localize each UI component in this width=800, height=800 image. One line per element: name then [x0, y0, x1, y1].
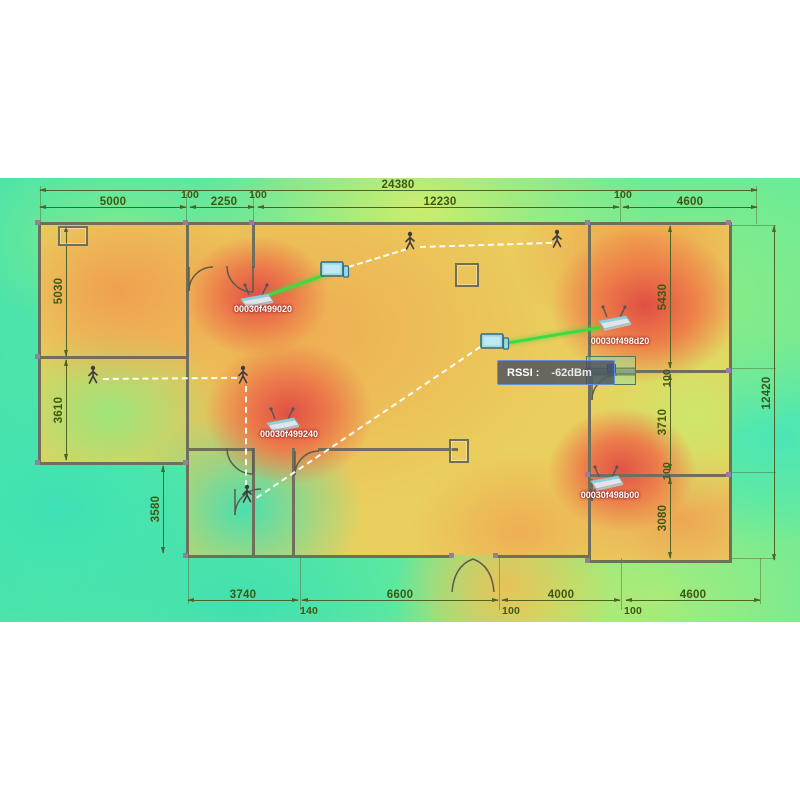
wall-junction [183, 220, 188, 225]
dim-label: 4600 [677, 196, 703, 208]
ap-mac-label: 00030f499240 [260, 429, 318, 439]
wall-junction [183, 460, 188, 465]
wall-junction [35, 460, 40, 465]
wall-topleft-partition [252, 222, 255, 268]
dim-label: 3740 [230, 589, 256, 601]
rssi-value: -62dBm [551, 367, 591, 379]
simulation-canvas[interactable]: 24380 5000 100 2250 100 12230 100 4600 5… [0, 0, 800, 800]
laptop-icon[interactable] [480, 331, 510, 351]
door-arc [188, 266, 214, 294]
dim-label-gap: 100 [661, 462, 673, 480]
wall-junction [726, 220, 731, 225]
dimension-line [163, 466, 164, 553]
dim-label: 6600 [387, 589, 413, 601]
dim-label-gap: 100 [661, 369, 673, 387]
extension-line [732, 225, 776, 226]
shaft-box [449, 439, 469, 463]
wall-left-bottom [38, 462, 188, 465]
person-icon[interactable] [86, 365, 100, 385]
dim-label-gap: 100 [614, 189, 632, 201]
dim-label-gap: 140 [300, 605, 318, 617]
wall-junction [726, 472, 731, 477]
walk-path [245, 386, 247, 486]
dim-label-gap: 100 [181, 189, 199, 201]
dim-label: 3610 [53, 397, 65, 423]
dim-label: 12230 [424, 196, 457, 208]
wall-innerroom-top [318, 448, 458, 451]
dim-label: 2250 [211, 196, 237, 208]
dim-label: 3080 [657, 505, 669, 531]
wall-junction [726, 368, 731, 373]
dimension-line [66, 360, 67, 460]
wall-left-outer [38, 222, 41, 465]
wall-junction [183, 553, 188, 558]
dim-label: 3580 [150, 496, 162, 522]
wall-junction [35, 220, 40, 225]
extension-line [732, 472, 776, 473]
ap-mac-label: 00030f498d20 [591, 336, 650, 346]
window-box [58, 226, 88, 246]
access-point-icon[interactable] [594, 305, 634, 331]
dim-label-gap: 100 [249, 189, 267, 201]
wall-junction [585, 558, 590, 563]
dim-label-overall-right: 12420 [761, 377, 773, 410]
extension-line [621, 558, 622, 610]
person-icon[interactable] [403, 231, 417, 251]
dim-label: 5030 [53, 278, 65, 304]
dimension-line [670, 374, 671, 470]
rssi-label: RSSI : [507, 367, 539, 379]
person-icon[interactable] [240, 484, 254, 504]
dim-label: 4600 [680, 589, 706, 601]
dim-label-overall-top: 24380 [382, 179, 415, 191]
wall-left-divider [38, 356, 188, 359]
dimension-line [774, 226, 775, 560]
extension-line [499, 558, 500, 610]
wall-junction [35, 354, 40, 359]
extension-line [732, 368, 776, 369]
wall-bigroom-bottom-right [496, 555, 590, 558]
extension-line [300, 558, 301, 610]
wall-rightblock-right [729, 222, 732, 563]
door-arc [226, 446, 254, 476]
wall-junction [249, 220, 254, 225]
dim-label: 5000 [100, 196, 126, 208]
dim-label-gap: 100 [624, 605, 642, 617]
wall-top [38, 222, 732, 225]
wall-rightblock-bottom [588, 560, 732, 563]
wall-junction [585, 220, 590, 225]
extension-line [732, 558, 776, 559]
laptop-icon[interactable] [320, 259, 350, 279]
ap-mac-label: 00030f499020 [234, 304, 292, 314]
pillar-box [455, 263, 479, 287]
dim-label: 5430 [657, 284, 669, 310]
access-point-icon[interactable] [586, 465, 626, 491]
dim-label: 4000 [548, 589, 574, 601]
dim-label: 3710 [657, 409, 669, 435]
rssi-tooltip: RSSI : -62dBm [497, 360, 615, 385]
person-icon[interactable] [550, 229, 564, 249]
dimension-line [670, 478, 671, 558]
wall-bigroom-bottom-left [186, 555, 452, 558]
double-door-arc [450, 556, 496, 594]
dimension-line [670, 226, 671, 368]
dim-label-gap: 100 [502, 605, 520, 617]
person-icon[interactable] [236, 365, 250, 385]
ap-mac-label: 00030f498b00 [581, 490, 640, 500]
